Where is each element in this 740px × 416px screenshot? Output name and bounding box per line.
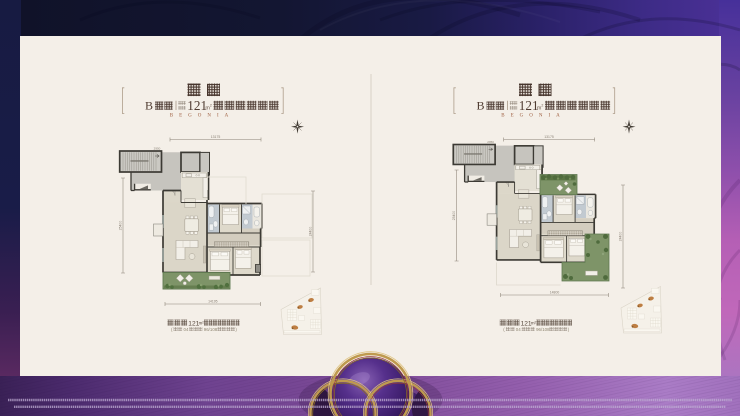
svg-text:96/108: 96/108 (204, 327, 218, 332)
svg-text:24400: 24400 (619, 232, 623, 242)
svg-text:13175: 13175 (544, 135, 554, 139)
svg-text:96/108: 96/108 (536, 327, 550, 332)
svg-text:m²: m² (199, 320, 205, 325)
svg-text:24400: 24400 (309, 227, 313, 237)
svg-text:m²: m² (531, 320, 537, 325)
svg-text:04: 04 (516, 327, 521, 332)
svg-text:14195: 14195 (208, 300, 218, 304)
svg-text:25400: 25400 (452, 211, 456, 221)
svg-text:13175: 13175 (211, 135, 221, 139)
svg-text:2: 2 (210, 104, 212, 108)
svg-text:B: B (145, 99, 153, 113)
svg-text:14800: 14800 (550, 291, 560, 295)
svg-text:25400: 25400 (119, 221, 123, 231)
svg-text:BEGONIA: BEGONIA (170, 113, 235, 118)
svg-text:121: 121 (187, 98, 207, 113)
svg-text:04: 04 (184, 327, 189, 332)
